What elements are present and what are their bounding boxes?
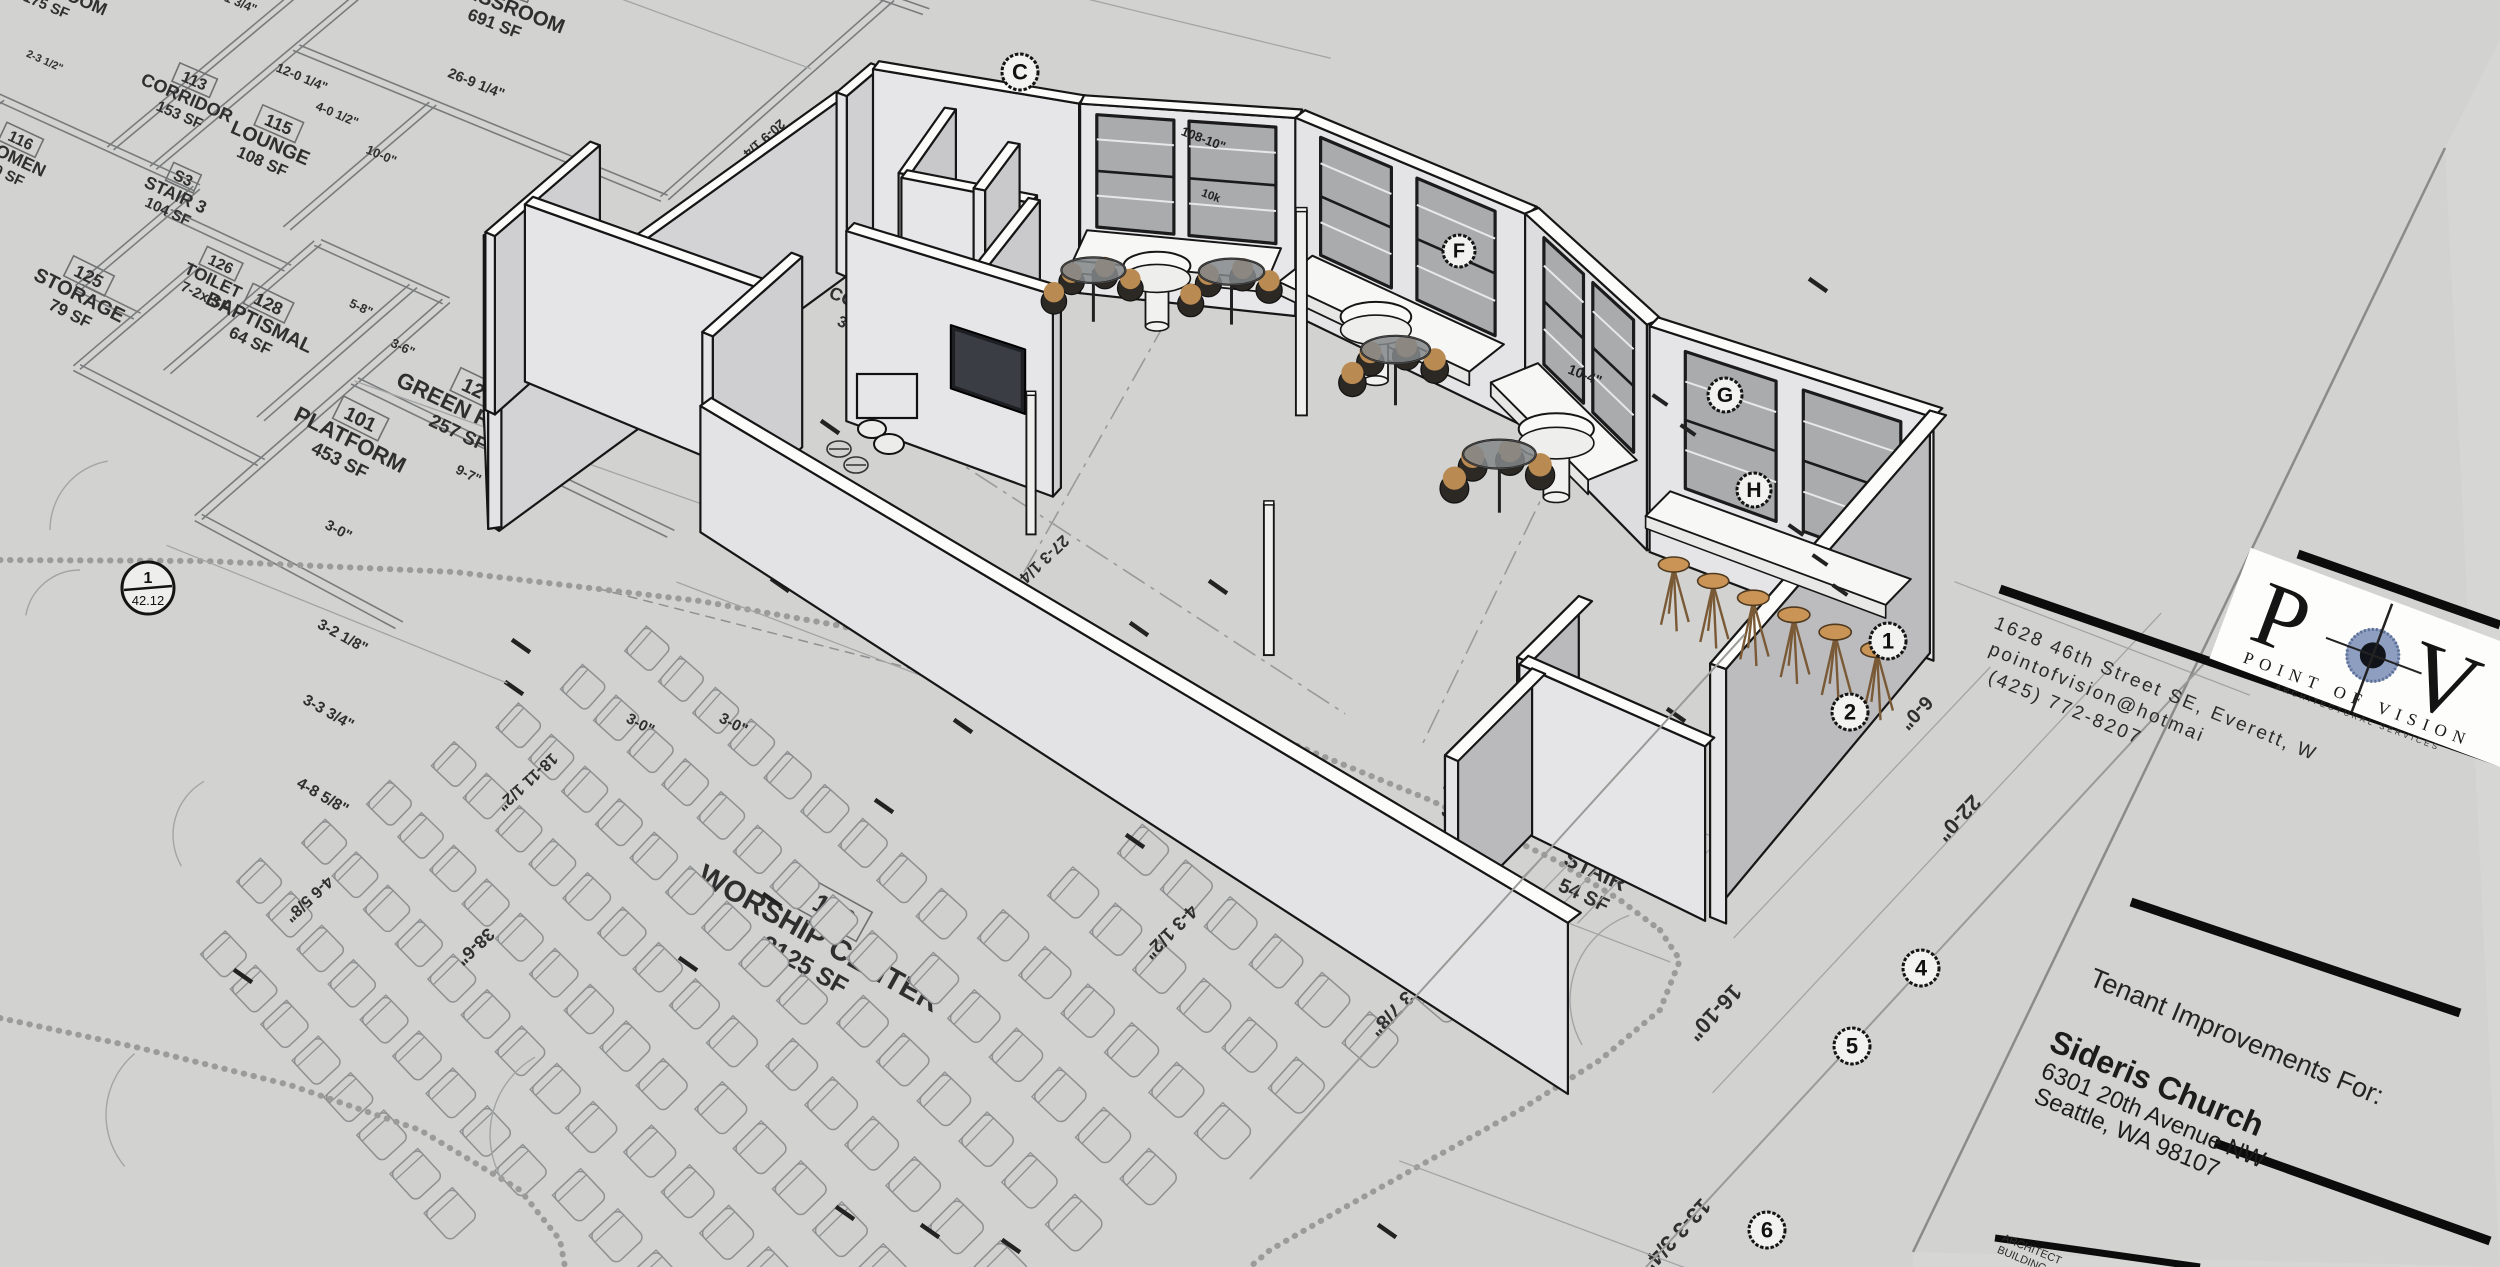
svg-text:G: G (1717, 384, 1733, 407)
svg-text:4: 4 (1915, 956, 1928, 981)
svg-text:5: 5 (1846, 1034, 1858, 1059)
svg-text:H: H (1746, 479, 1761, 502)
svg-text:F: F (1453, 241, 1465, 263)
svg-text:1: 1 (1882, 629, 1894, 654)
svg-text:2: 2 (1844, 700, 1856, 725)
svg-text:C: C (1012, 60, 1028, 85)
svg-text:6: 6 (1761, 1218, 1773, 1243)
svg-text:42.12: 42.12 (132, 593, 165, 608)
svg-text:1: 1 (144, 570, 153, 587)
